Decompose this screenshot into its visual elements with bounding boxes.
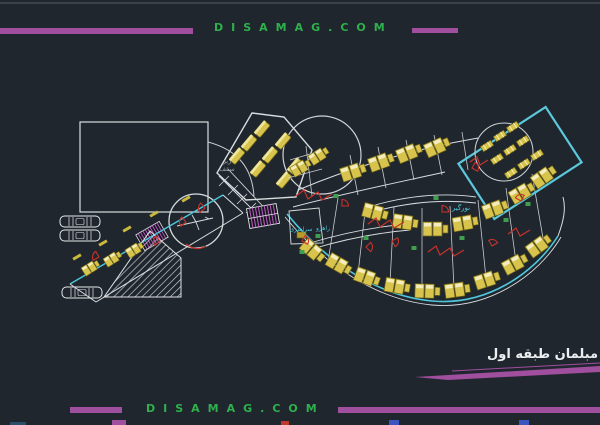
label-corridor-2: سراسری	[288, 226, 314, 233]
site-brand-bottom: DISAMAG.COM	[146, 402, 325, 415]
roof-furniture	[480, 121, 543, 179]
footer-accent-bar-left	[70, 407, 122, 413]
hatched-area	[104, 231, 181, 297]
label-under-ceiling: زیر سقف	[210, 158, 244, 173]
title-underline-swoosh	[415, 363, 600, 380]
bottom-edge-artifacts	[10, 420, 529, 425]
guest-room-furniture	[290, 135, 559, 299]
left-wing	[70, 195, 243, 302]
parking-cars	[60, 216, 102, 298]
footer-accent-bar-right	[338, 407, 600, 413]
page: DISAMAG.COM	[0, 0, 600, 425]
drawing-title: مبلمان طبقه اول	[487, 347, 598, 362]
label-lightwell: نورگیر	[438, 204, 484, 212]
car-icon	[60, 230, 100, 241]
car-icon	[60, 216, 100, 227]
